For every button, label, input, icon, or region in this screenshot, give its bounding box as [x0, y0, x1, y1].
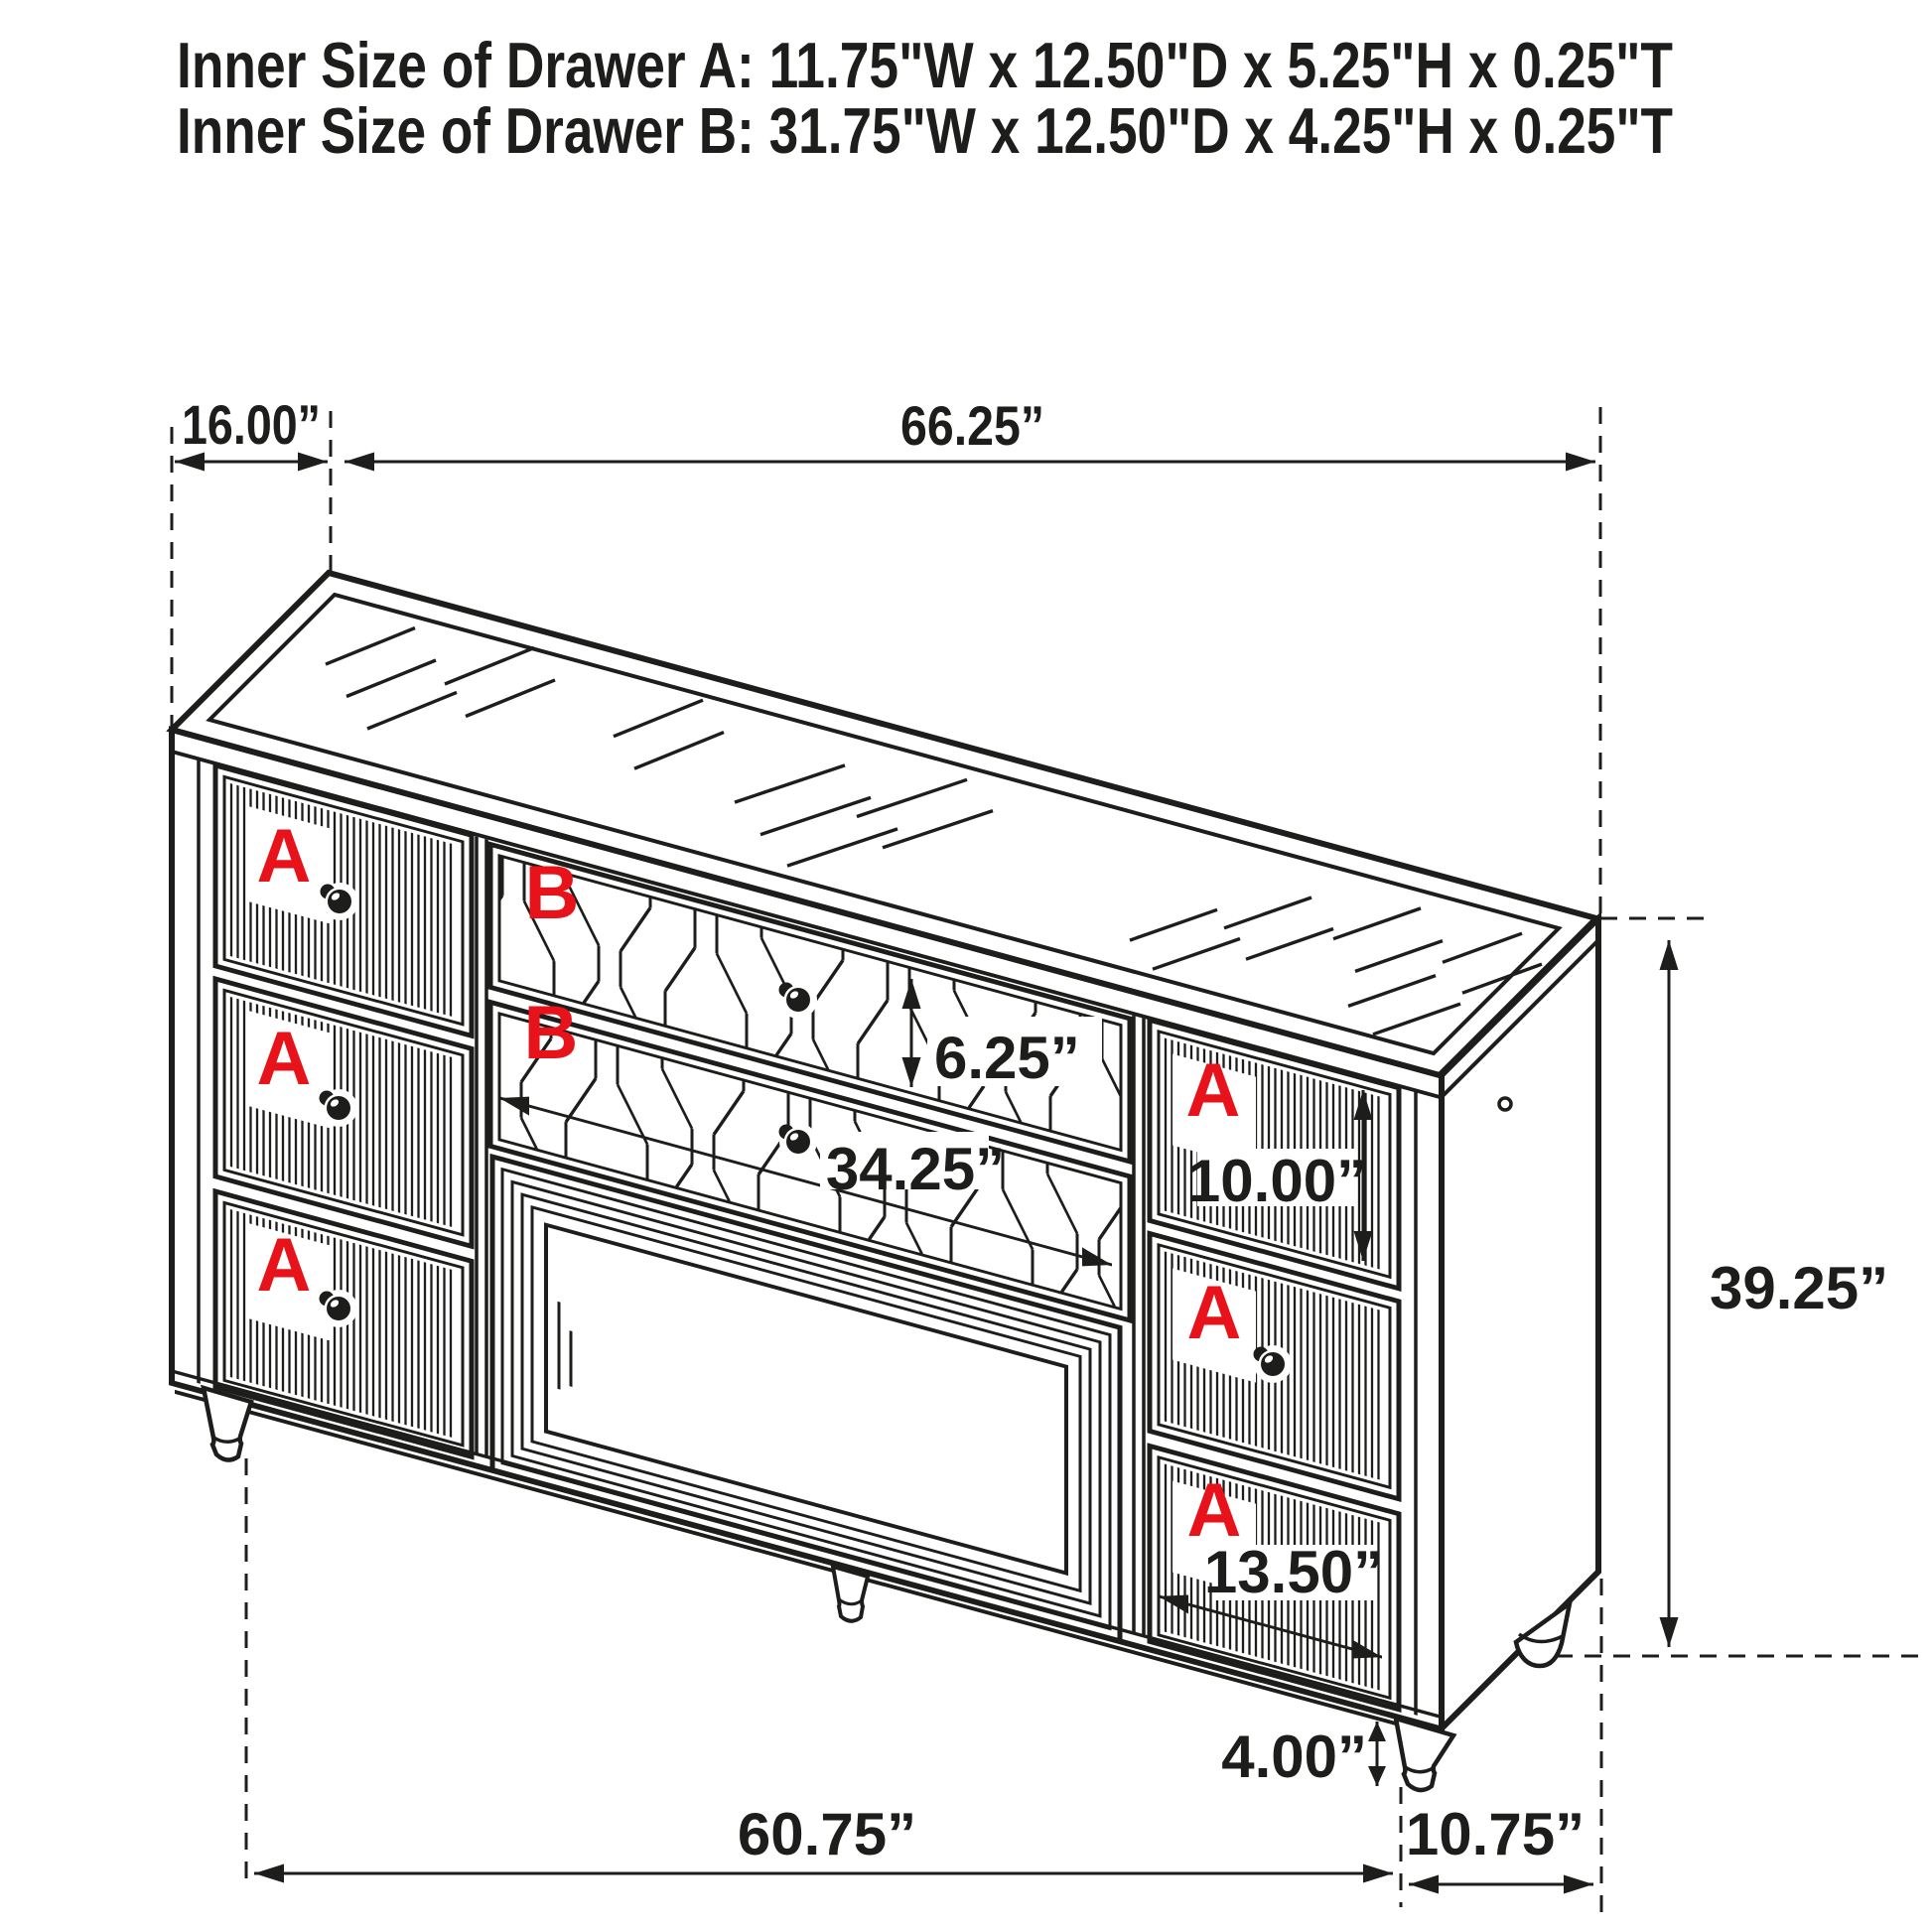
- svg-text:16.00”: 16.00”: [182, 393, 321, 456]
- svg-text:34.25”: 34.25”: [826, 1136, 1005, 1202]
- svg-text:10.75”: 10.75”: [1406, 1801, 1585, 1867]
- svg-text:B: B: [525, 851, 580, 935]
- svg-text:39.25”: 39.25”: [1710, 1255, 1888, 1321]
- svg-text:66.25”: 66.25”: [900, 394, 1044, 457]
- svg-text:Inner Size of Drawer A: 11.75": Inner Size of Drawer A: 11.75"W x 12.50"…: [177, 29, 1673, 101]
- svg-text:Inner Size of Drawer B: 31.75": Inner Size of Drawer B: 31.75"W x 12.50"…: [177, 94, 1673, 167]
- svg-text:13.50”: 13.50”: [1204, 1539, 1383, 1605]
- svg-text:B: B: [524, 991, 579, 1075]
- svg-text:4.00”: 4.00”: [1221, 1724, 1367, 1790]
- svg-text:6.25”: 6.25”: [934, 1025, 1080, 1091]
- svg-text:A: A: [257, 1017, 312, 1101]
- svg-text:10.00”: 10.00”: [1187, 1148, 1366, 1214]
- svg-text:A: A: [1186, 1048, 1241, 1133]
- svg-text:60.75”: 60.75”: [738, 1801, 916, 1867]
- svg-text:A: A: [257, 1223, 312, 1308]
- svg-text:A: A: [1187, 1271, 1242, 1355]
- svg-text:A: A: [257, 814, 312, 898]
